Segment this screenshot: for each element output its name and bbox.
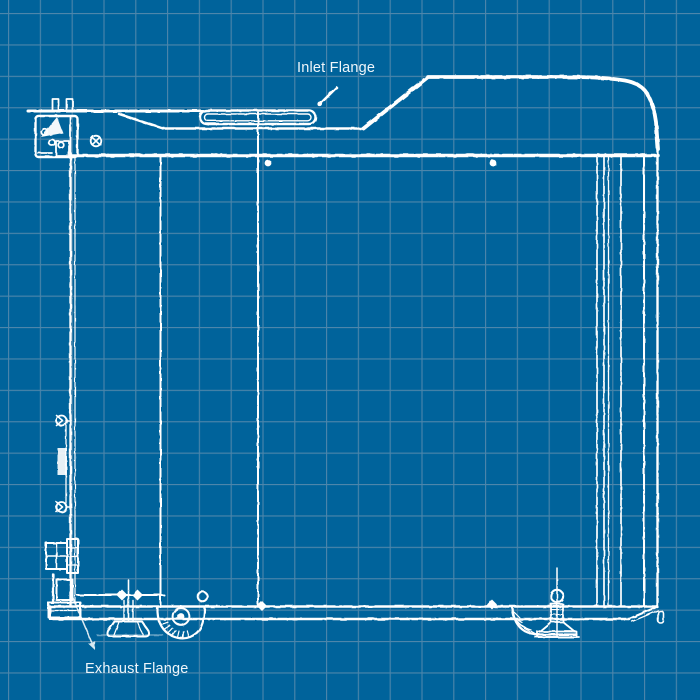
blueprint-canvas: Inlet Flange Exhaust Flange xyxy=(0,0,700,700)
blueprint-drawing: Inlet Flange Exhaust Flange xyxy=(0,0,700,700)
exhaust-flange-label: Exhaust Flange xyxy=(85,661,189,677)
inlet-flange-label: Inlet Flange xyxy=(297,60,375,76)
